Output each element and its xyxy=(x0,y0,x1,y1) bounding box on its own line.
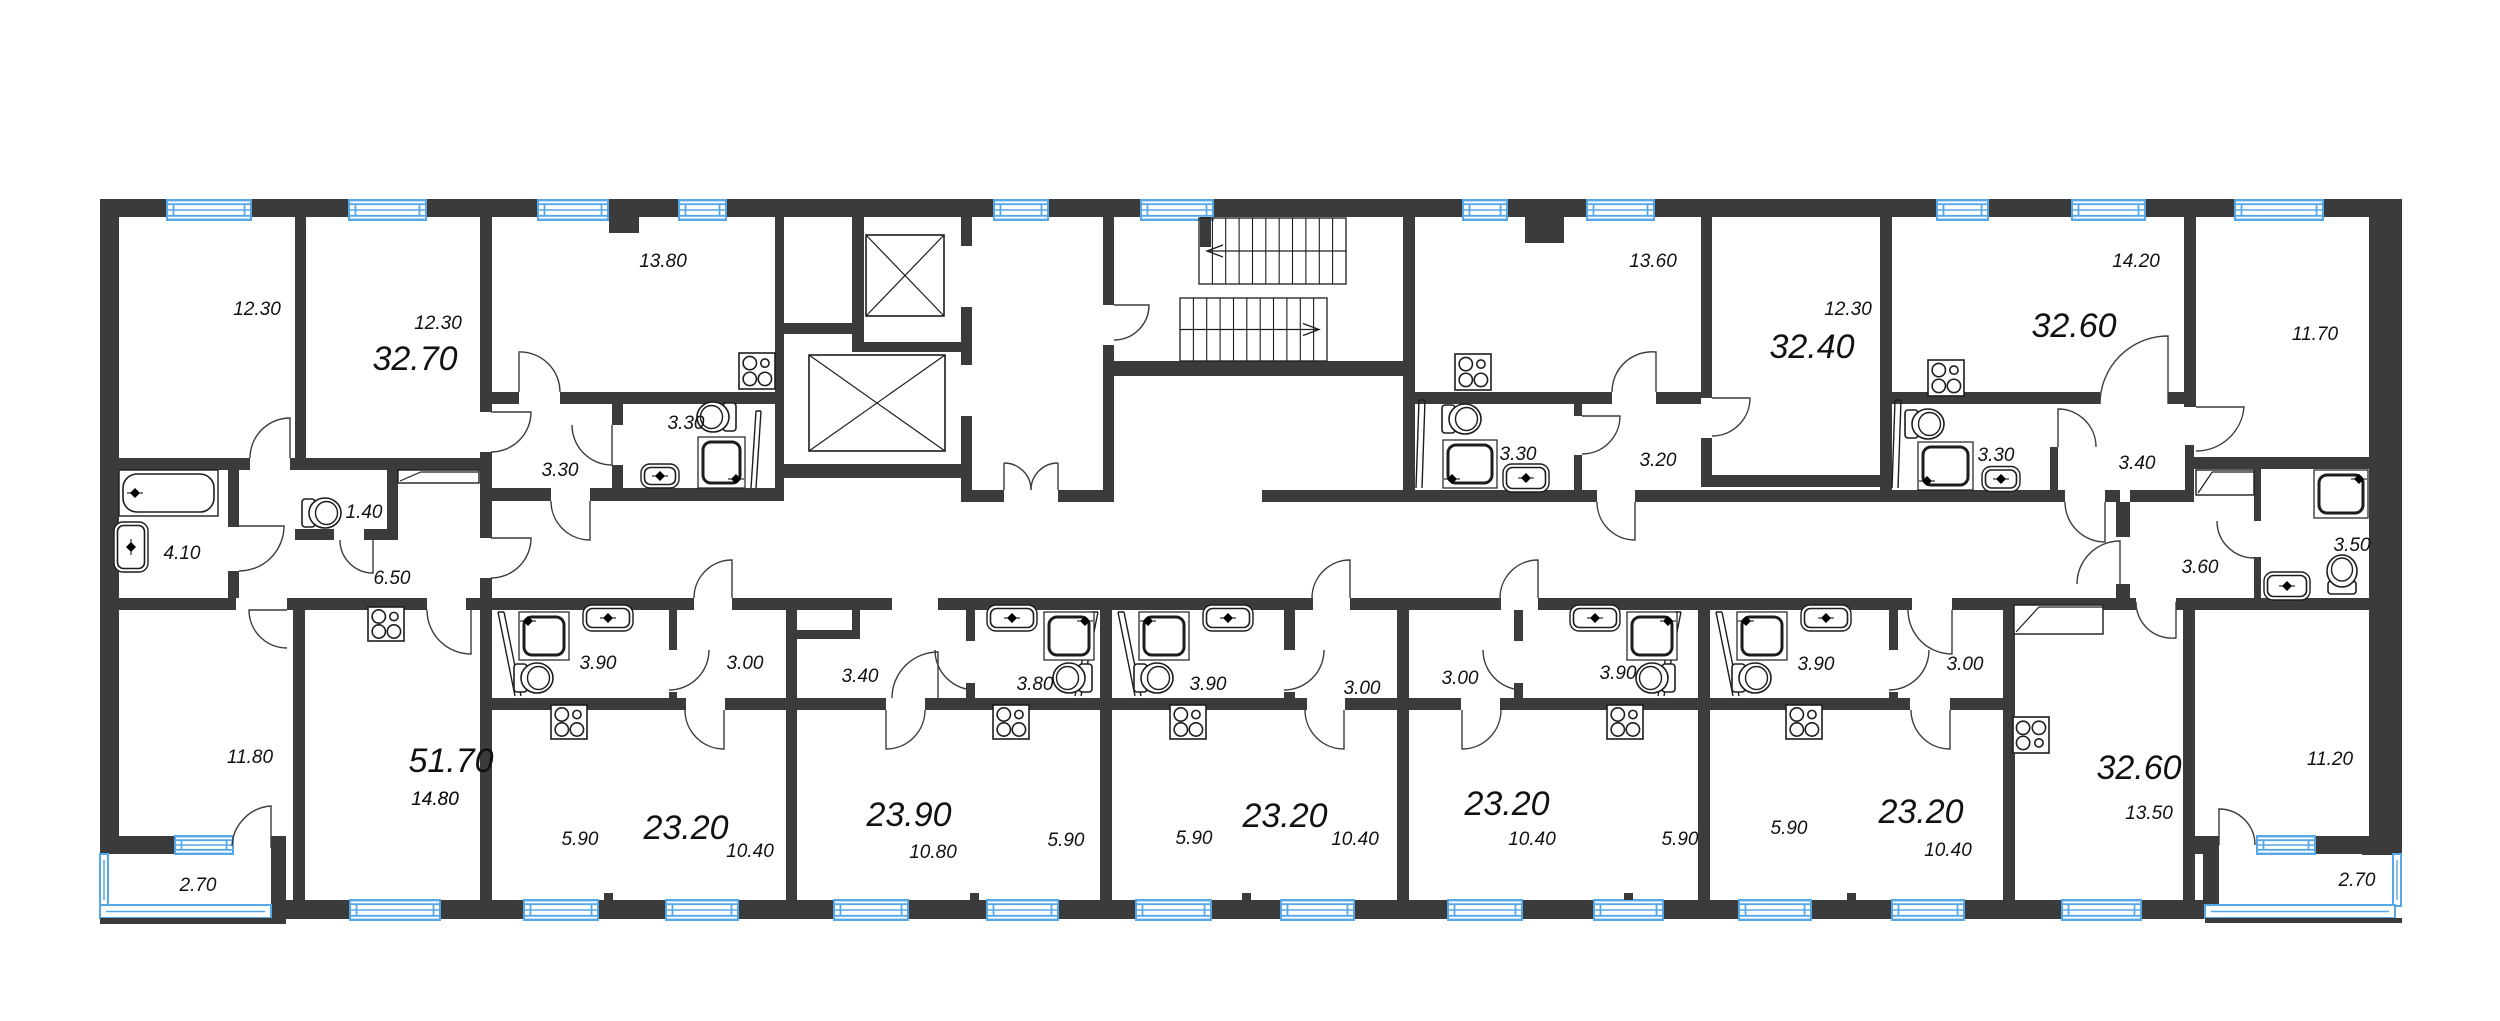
svg-text:3.00: 3.00 xyxy=(1344,678,1381,699)
svg-text:4.10: 4.10 xyxy=(164,543,201,564)
svg-text:3.30: 3.30 xyxy=(1978,445,2015,466)
svg-text:14.80: 14.80 xyxy=(411,789,459,810)
svg-text:14.20: 14.20 xyxy=(2112,251,2160,272)
svg-text:3.30: 3.30 xyxy=(1500,444,1537,465)
svg-text:32.60: 32.60 xyxy=(2031,307,2116,345)
svg-text:11.20: 11.20 xyxy=(2307,749,2354,770)
svg-text:3.80: 3.80 xyxy=(1017,674,1054,695)
svg-text:23.20: 23.20 xyxy=(1241,797,1327,835)
svg-text:1.40: 1.40 xyxy=(346,502,383,523)
svg-text:51.70: 51.70 xyxy=(408,742,493,780)
svg-text:5.90: 5.90 xyxy=(1048,830,1085,851)
svg-text:23.20: 23.20 xyxy=(1463,785,1549,823)
svg-text:3.30: 3.30 xyxy=(542,460,579,481)
svg-text:5.90: 5.90 xyxy=(562,829,599,850)
svg-text:10.40: 10.40 xyxy=(1331,829,1379,850)
svg-text:11.80: 11.80 xyxy=(227,747,274,768)
svg-text:3.40: 3.40 xyxy=(842,666,879,687)
svg-text:12.30: 12.30 xyxy=(414,313,462,334)
svg-text:23.90: 23.90 xyxy=(865,796,951,834)
svg-text:13.50: 13.50 xyxy=(2125,803,2173,824)
svg-text:3.00: 3.00 xyxy=(1947,654,1984,675)
svg-text:3.00: 3.00 xyxy=(727,653,764,674)
svg-text:3.90: 3.90 xyxy=(1600,663,1637,684)
svg-text:3.60: 3.60 xyxy=(2182,557,2219,578)
svg-text:3.20: 3.20 xyxy=(1640,450,1677,471)
svg-text:3.90: 3.90 xyxy=(580,653,617,674)
svg-text:2.70: 2.70 xyxy=(179,875,217,896)
svg-text:32.60: 32.60 xyxy=(2096,749,2181,787)
svg-text:23.20: 23.20 xyxy=(1877,793,1963,831)
svg-text:32.40: 32.40 xyxy=(1769,328,1854,366)
svg-text:10.80: 10.80 xyxy=(909,842,957,863)
svg-text:23.20: 23.20 xyxy=(642,809,728,847)
svg-text:3.30: 3.30 xyxy=(668,413,705,434)
svg-text:2.70: 2.70 xyxy=(2338,870,2376,891)
svg-text:32.70: 32.70 xyxy=(372,340,457,378)
svg-text:10.40: 10.40 xyxy=(726,841,774,862)
svg-text:3.50: 3.50 xyxy=(2334,535,2371,556)
svg-text:5.90: 5.90 xyxy=(1662,829,1699,850)
svg-text:13.80: 13.80 xyxy=(639,251,687,272)
svg-text:3.90: 3.90 xyxy=(1798,654,1835,675)
svg-text:5.90: 5.90 xyxy=(1176,828,1213,849)
svg-text:10.40: 10.40 xyxy=(1508,829,1556,850)
svg-text:11.70: 11.70 xyxy=(2292,324,2339,345)
svg-text:3.90: 3.90 xyxy=(1190,674,1227,695)
svg-text:10.40: 10.40 xyxy=(1924,840,1972,861)
svg-text:3.00: 3.00 xyxy=(1442,668,1479,689)
svg-text:6.50: 6.50 xyxy=(374,568,411,589)
svg-text:5.90: 5.90 xyxy=(1771,818,1808,839)
svg-text:13.60: 13.60 xyxy=(1629,251,1677,272)
svg-text:12.30: 12.30 xyxy=(233,299,281,320)
svg-text:12.30: 12.30 xyxy=(1824,299,1872,320)
svg-text:3.40: 3.40 xyxy=(2119,453,2156,474)
